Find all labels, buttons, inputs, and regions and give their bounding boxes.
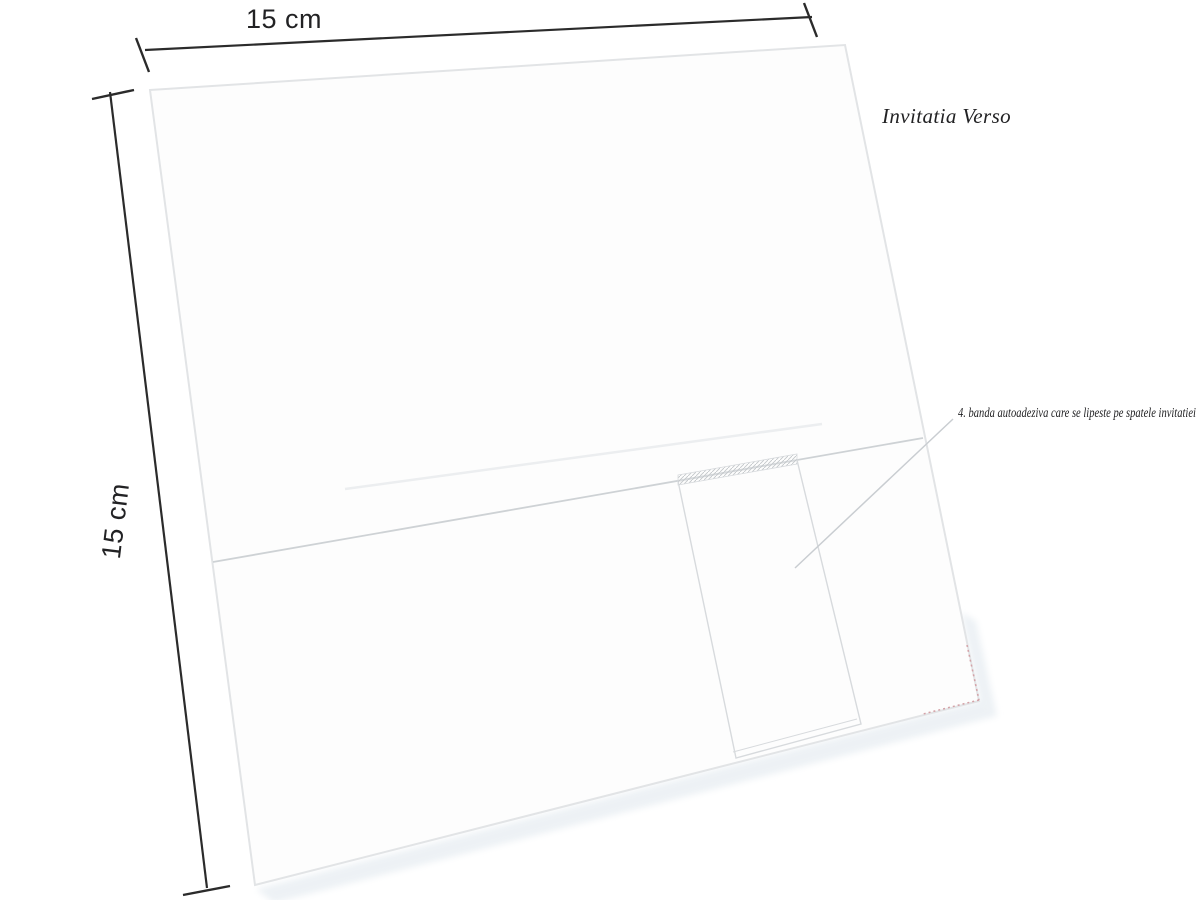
top-dimension-label: 15 cm bbox=[246, 4, 322, 35]
invitation-diecut-diagram: 15 cm 15 cm Invitatia Verso 4. banda aut… bbox=[0, 0, 1200, 900]
diagram-canvas bbox=[0, 0, 1200, 900]
diagram-title: Invitatia Verso bbox=[882, 104, 1011, 129]
card-outline bbox=[150, 45, 979, 885]
adhesive-band-annotation: 4. banda autoadeziva care se lipeste pe … bbox=[958, 405, 1196, 421]
top-dimension-tick-right bbox=[804, 3, 817, 37]
left-dimension-tick-top bbox=[92, 90, 134, 99]
top-dimension-tick-left bbox=[136, 38, 149, 72]
